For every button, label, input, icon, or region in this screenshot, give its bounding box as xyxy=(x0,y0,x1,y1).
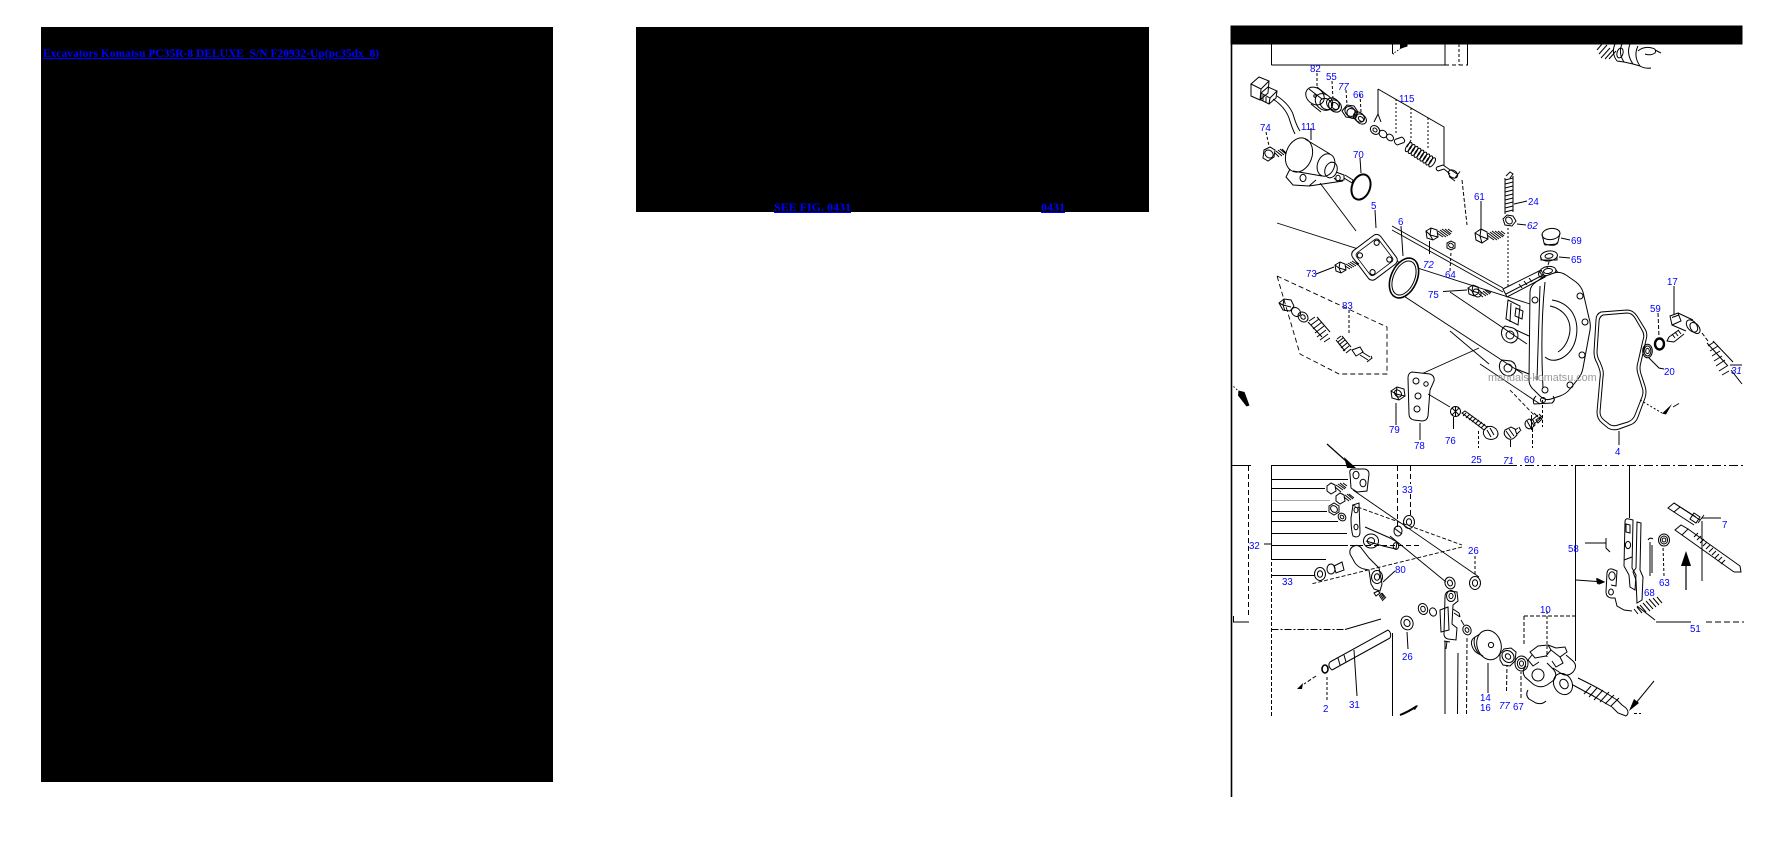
svg-text:33: 33 xyxy=(1282,577,1293,588)
svg-text:76: 76 xyxy=(1445,436,1456,447)
svg-text:71: 71 xyxy=(1503,456,1514,467)
svg-text:111: 111 xyxy=(1301,122,1316,133)
svg-text:17: 17 xyxy=(1667,277,1678,288)
svg-text:62: 62 xyxy=(1527,221,1538,232)
svg-text:68: 68 xyxy=(1644,588,1655,599)
svg-text:60: 60 xyxy=(1524,455,1535,466)
svg-text:31: 31 xyxy=(1349,700,1360,711)
svg-text:51: 51 xyxy=(1690,624,1701,635)
svg-text:55: 55 xyxy=(1326,72,1337,83)
svg-text:63: 63 xyxy=(1659,578,1670,589)
svg-text:66: 66 xyxy=(1353,90,1364,101)
svg-text:10: 10 xyxy=(1540,605,1551,616)
svg-text:5: 5 xyxy=(1371,201,1376,212)
svg-text:78: 78 xyxy=(1414,441,1425,452)
svg-text:64: 64 xyxy=(1445,270,1456,281)
svg-text:83: 83 xyxy=(1342,301,1353,312)
svg-text:26: 26 xyxy=(1402,652,1413,663)
svg-text:75: 75 xyxy=(1428,290,1439,301)
svg-text:25: 25 xyxy=(1471,455,1482,466)
svg-text:4: 4 xyxy=(1615,447,1621,458)
svg-text:73: 73 xyxy=(1306,269,1317,280)
svg-text:70: 70 xyxy=(1353,150,1364,161)
svg-text:72: 72 xyxy=(1423,260,1434,271)
svg-text:26: 26 xyxy=(1468,546,1479,557)
svg-text:33: 33 xyxy=(1402,485,1413,496)
svg-text:59: 59 xyxy=(1650,304,1661,315)
svg-text:61: 61 xyxy=(1474,192,1485,203)
svg-text:74: 74 xyxy=(1260,123,1271,134)
svg-text:manuals-komatsu.com: manuals-komatsu.com xyxy=(1488,372,1597,384)
svg-text:69: 69 xyxy=(1571,236,1582,247)
svg-text:24: 24 xyxy=(1528,197,1539,208)
svg-text:79: 79 xyxy=(1389,425,1400,436)
svg-text:77: 77 xyxy=(1499,701,1510,712)
svg-text:2: 2 xyxy=(1323,704,1328,715)
svg-text:58: 58 xyxy=(1568,544,1579,555)
svg-text:77: 77 xyxy=(1338,82,1349,93)
svg-text:82: 82 xyxy=(1310,64,1321,75)
svg-text:115: 115 xyxy=(1399,94,1414,105)
svg-text:6: 6 xyxy=(1398,217,1403,228)
svg-text:20: 20 xyxy=(1664,367,1675,378)
svg-text:32: 32 xyxy=(1249,541,1260,552)
svg-text:7: 7 xyxy=(1722,520,1727,531)
svg-text:65: 65 xyxy=(1571,255,1582,266)
svg-text:67: 67 xyxy=(1513,702,1524,713)
svg-text:31: 31 xyxy=(1731,366,1742,377)
svg-text:16: 16 xyxy=(1480,703,1491,714)
svg-text:80: 80 xyxy=(1395,565,1406,576)
